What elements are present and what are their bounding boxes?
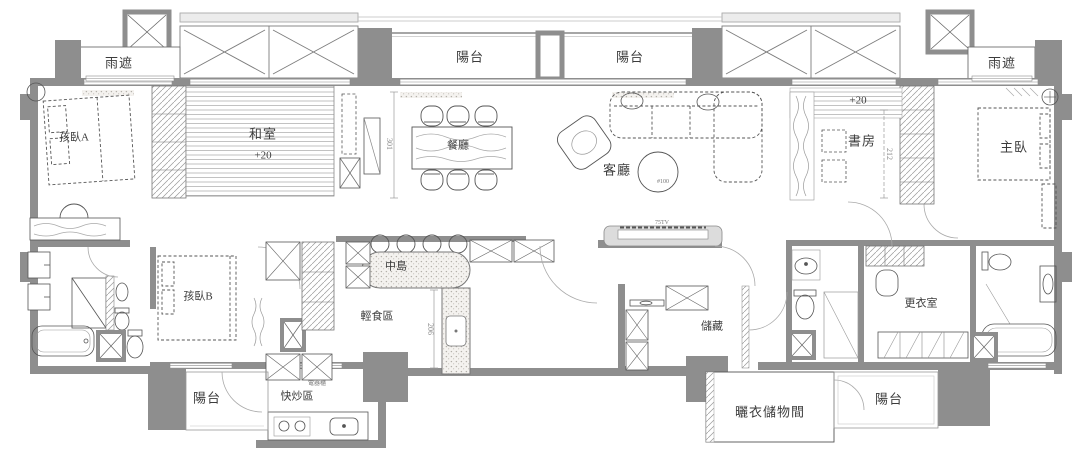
room-label-kid-bedroom-b: 孩臥B [183, 292, 212, 303]
room-label-light-meal-area: 輕食區 [361, 312, 394, 323]
room-label-balcony-bottom-left: 陽台 [193, 392, 221, 405]
foyer-door-arc [715, 246, 755, 286]
study-furniture [790, 88, 902, 246]
balcony-pillar [538, 33, 562, 79]
room-label-master-bedroom: 主臥 [1000, 141, 1028, 154]
annotation-tv-size: 75TV [655, 220, 669, 226]
dimension-label-206: 206 [426, 323, 434, 335]
room-label-study: 書房 [848, 135, 876, 148]
balcony-railing-top [358, 17, 722, 79]
room-label-balcony-top-left: 陽台 [456, 51, 484, 64]
room-label-dining: 餐廳 [447, 141, 469, 152]
room-label-balcony-bottom-right: 陽台 [875, 393, 903, 406]
coffee-table [638, 152, 678, 192]
top-trellis-left [180, 13, 358, 78]
level-study: +20 [849, 96, 866, 107]
room-label-kid-bedroom-a: 孩臥A [59, 133, 89, 144]
master-bedroom-furniture [900, 86, 1058, 238]
dimension-label-212: 212 [885, 148, 893, 160]
tatami-room-area [152, 86, 380, 198]
room-label-rain-shelter-right: 雨遮 [988, 57, 1016, 70]
bathroom-left [28, 247, 143, 360]
label-appliance-cabinet: 電器櫃 [308, 381, 326, 387]
kid-bedroom-a-furniture [27, 83, 135, 240]
level-tatami: +20 [254, 151, 271, 162]
room-label-tatami: 和室 [249, 128, 277, 141]
dimension-label-301: 301 [385, 138, 393, 150]
master-bathroom [972, 252, 1056, 360]
room-label-walk-in-closet: 更衣室 [905, 299, 938, 310]
room-label-laundry-storage: 曬衣儲物間 [735, 406, 805, 419]
room-label-balcony-top-right: 陽台 [616, 51, 644, 64]
bathroom-middle [790, 250, 858, 358]
top-trellis-right [722, 13, 900, 78]
room-label-storage: 儲藏 [701, 322, 723, 333]
annotation-table-diameter: #100 [657, 179, 669, 185]
room-label-living: 客廳 [603, 164, 631, 177]
room-label-island: 中島 [385, 262, 407, 273]
room-label-stir-fry-area: 快炒區 [281, 392, 314, 403]
floor-plan-page: 雨遮 雨遮 陽台 陽台 孩臥A 和室 +20 餐廳 客廳 +20 書房 主臥 孩… [0, 0, 1080, 455]
tv-console [604, 226, 722, 246]
floor-plan-drawing [0, 0, 1080, 455]
room-label-rain-shelter-left: 雨遮 [105, 57, 133, 70]
living-room-furniture [554, 92, 762, 192]
